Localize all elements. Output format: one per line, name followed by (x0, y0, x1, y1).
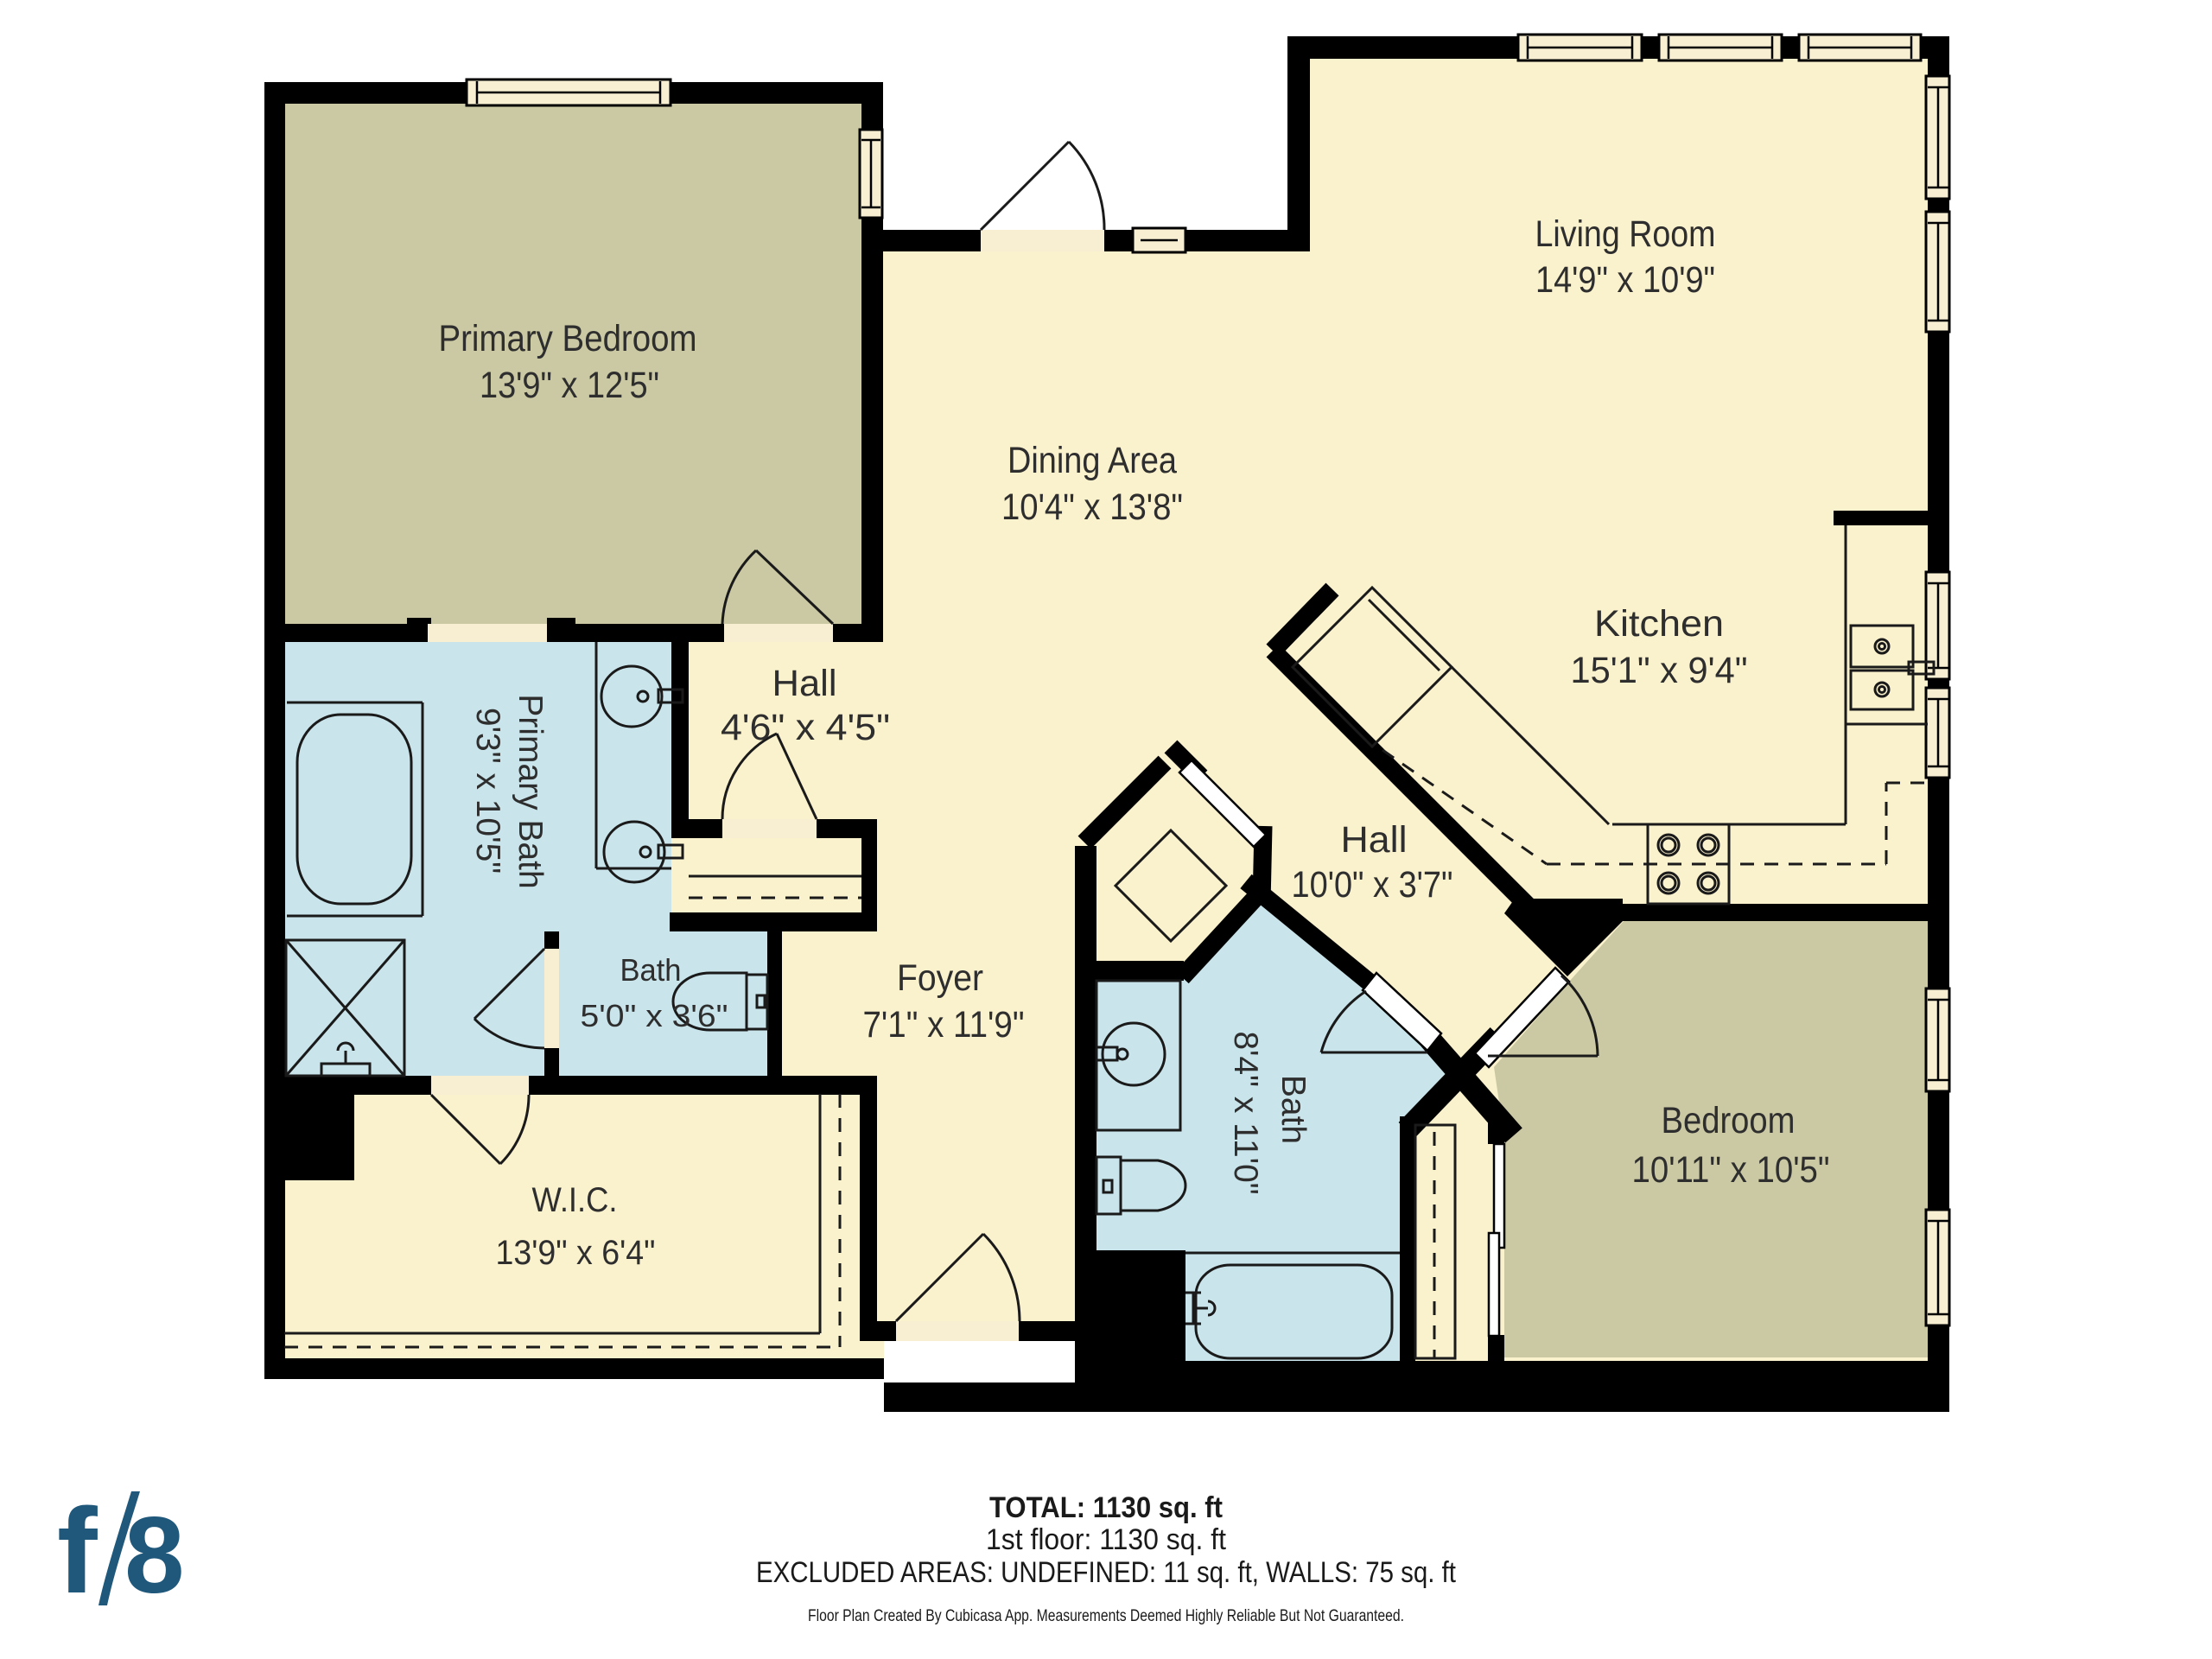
svg-text:15'1" x 9'4": 15'1" x 9'4" (1571, 650, 1748, 691)
svg-text:Bath: Bath (620, 952, 682, 988)
svg-text:10'11" x 10'5": 10'11" x 10'5" (1632, 1149, 1830, 1191)
svg-text:13'9" x 12'5": 13'9" x 12'5" (480, 365, 659, 406)
svg-text:Foyer: Foyer (897, 957, 983, 999)
svg-text:Primary Bedroom: Primary Bedroom (439, 318, 697, 359)
svg-text:8'4" x 11'0": 8'4" x 11'0" (1227, 1031, 1264, 1194)
svg-text:13'9" x 6'4": 13'9" x 6'4" (496, 1234, 656, 1272)
svg-text:TOTAL: 1130 sq. ft: TOTAL: 1130 sq. ft (989, 1491, 1223, 1524)
svg-text:Bedroom: Bedroom (1662, 1100, 1796, 1141)
svg-text:Hall: Hall (1341, 819, 1408, 861)
svg-text:4'6" x 4'5": 4'6" x 4'5" (721, 707, 890, 748)
svg-text:Primary Bath: Primary Bath (512, 694, 549, 888)
svg-text:Living Room: Living Room (1535, 213, 1716, 255)
svg-text:W.I.C.: W.I.C. (532, 1181, 618, 1219)
svg-text:10'4" x 13'8": 10'4" x 13'8" (1001, 486, 1183, 528)
svg-text:Dining Area: Dining Area (1007, 440, 1177, 481)
svg-text:Bath: Bath (1274, 1075, 1312, 1144)
svg-text:EXCLUDED AREAS: UNDEFINED: 11: EXCLUDED AREAS: UNDEFINED: 11 sq. ft, WA… (756, 1556, 1456, 1589)
svg-text:Hall: Hall (772, 663, 837, 704)
svg-text:Floor Plan Created By Cubicasa: Floor Plan Created By Cubicasa App. Meas… (808, 1607, 1404, 1625)
svg-text:9'3" x 10'5": 9'3" x 10'5" (469, 708, 506, 874)
svg-text:10'0" x 3'7": 10'0" x 3'7" (1292, 864, 1453, 906)
svg-text:f: f (57, 1483, 98, 1618)
svg-text:8: 8 (124, 1496, 185, 1616)
svg-text:1st floor: 1130 sq. ft: 1st floor: 1130 sq. ft (986, 1523, 1227, 1556)
svg-text:14'9" x 10'9": 14'9" x 10'9" (1535, 259, 1715, 301)
svg-text:7'1" x 11'9": 7'1" x 11'9" (863, 1004, 1025, 1046)
svg-text:Kitchen: Kitchen (1594, 603, 1724, 645)
svg-text:5'0" x 3'6": 5'0" x 3'6" (581, 998, 728, 1033)
